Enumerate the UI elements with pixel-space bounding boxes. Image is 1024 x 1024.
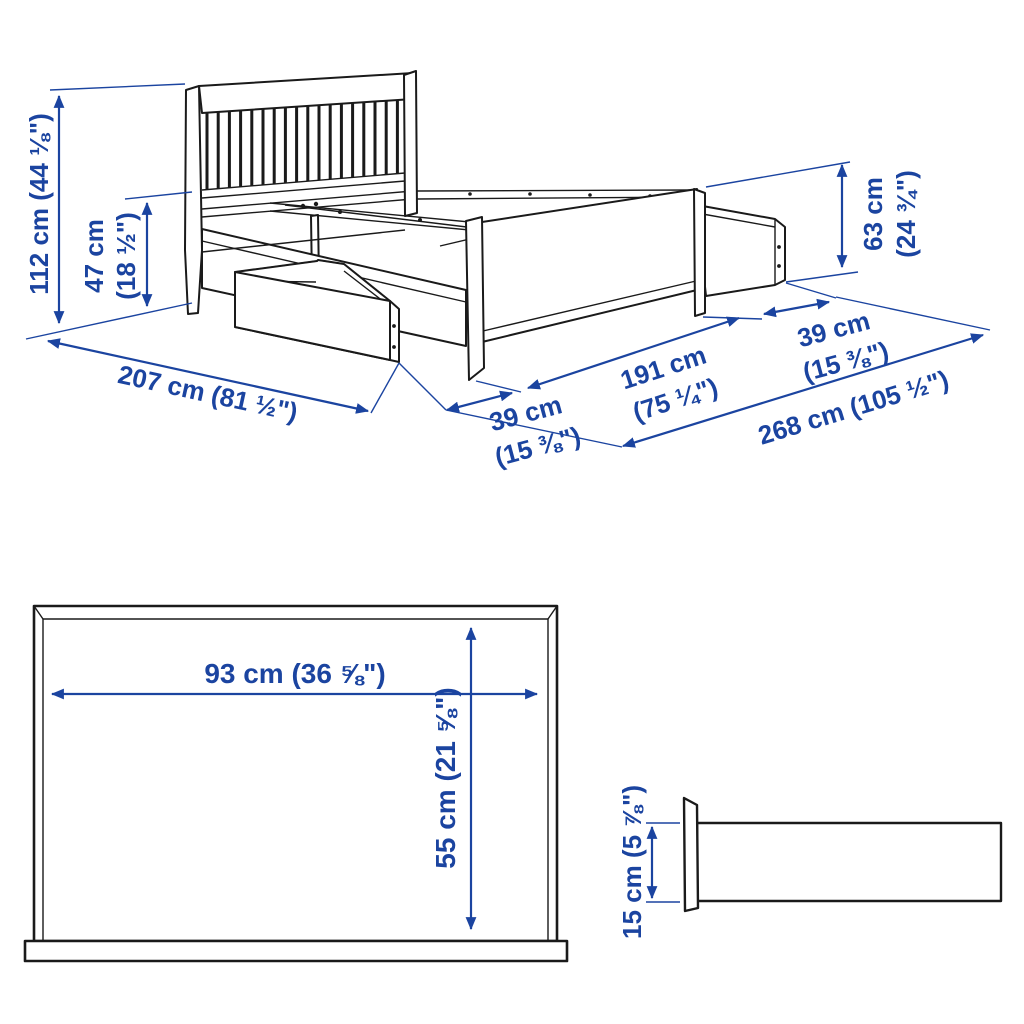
label-box-height: 15 cm (5 ⅞") — [617, 785, 647, 939]
arrow-side-drawer-extension — [764, 302, 829, 314]
ext-line — [786, 283, 836, 298]
ext-line — [399, 363, 446, 410]
side-drawer — [697, 205, 785, 296]
ext-line — [706, 162, 850, 187]
label-footboard-height-in: (24 ¾") — [891, 170, 921, 257]
ext-line — [703, 317, 762, 319]
headboard-top-rail — [199, 73, 413, 113]
label-footboard-height-cm: 63 cm — [858, 177, 888, 251]
side-view-box — [697, 823, 1001, 901]
front-view-plinth — [25, 941, 567, 961]
dimension-diagram: 112 cm (44 ⅛") 47 cm (18 ½") 63 cm (24 ¾… — [0, 0, 1024, 1024]
label-bed-length: 207 cm (81 ½") — [115, 359, 300, 427]
label-base-height-in: (18 ½") — [111, 212, 141, 299]
label-total-length-open: 268 cm (105 ½") — [755, 364, 952, 450]
ext-line — [26, 303, 192, 339]
ext-line — [371, 363, 399, 413]
label-base-height-cm: 47 cm — [79, 219, 109, 293]
ext-line — [786, 272, 858, 282]
label-total-height: 112 cm (44 ⅛") — [24, 113, 54, 294]
front-view: 93 cm (36 ⅝") 55 cm (21 ⅝") — [25, 606, 567, 961]
ext-line — [125, 192, 192, 199]
footboard-near-leg — [466, 217, 484, 380]
label-front-height: 55 cm (21 ⅝") — [430, 687, 461, 868]
headboard-left-post — [185, 86, 202, 314]
drawer-front-edge — [390, 301, 399, 362]
side-view: 15 cm (5 ⅞") — [617, 785, 1001, 939]
front-view-outer — [34, 606, 557, 941]
footboard-panel — [482, 189, 697, 342]
side-view-front-panel — [684, 798, 698, 911]
ext-line — [50, 84, 185, 90]
footboard-far-post — [694, 189, 705, 316]
headboard-right-post — [404, 71, 417, 216]
label-front-width: 93 cm (36 ⅝") — [204, 658, 385, 689]
ext-line — [476, 381, 521, 392]
